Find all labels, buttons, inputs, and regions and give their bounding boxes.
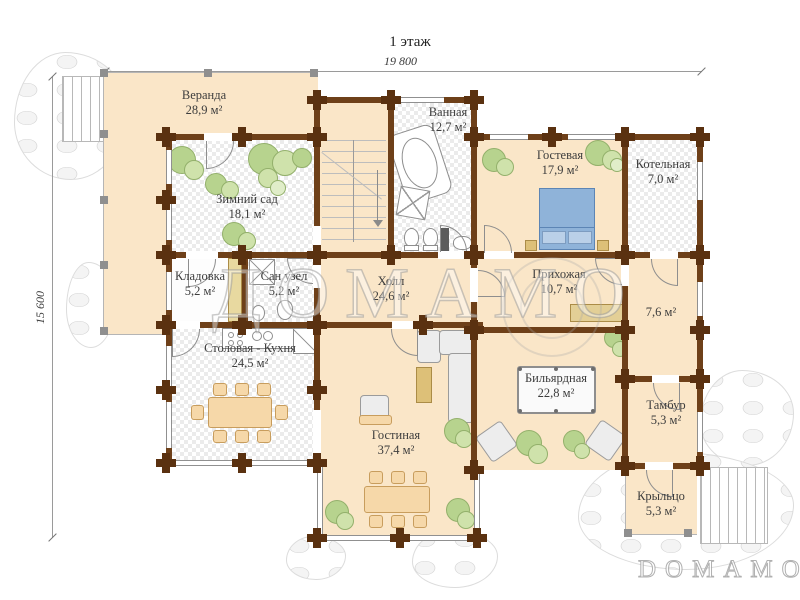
room-name: Ванная	[429, 105, 468, 120]
log-post	[381, 251, 401, 259]
room-area: 5,3 м²	[637, 504, 685, 519]
chair	[213, 430, 227, 443]
door-opening	[652, 375, 679, 383]
log-post	[615, 251, 635, 259]
room-area: 5,3 м²	[646, 413, 685, 428]
log-post	[615, 375, 635, 383]
log-post	[615, 462, 635, 470]
veranda-post	[204, 69, 212, 77]
room-area: 5,2 м²	[261, 284, 308, 299]
stair-rail	[353, 140, 354, 242]
dining-table	[208, 397, 272, 428]
room-area: 24,5 м²	[204, 356, 296, 371]
room-label-porch: Крыльцо 5,3 м²	[637, 489, 685, 519]
plan-title: 1 этаж	[389, 34, 430, 51]
room-area: 37,4 м²	[372, 443, 420, 458]
wall	[388, 97, 394, 258]
room-label-storage: Кладовка 5,2 м²	[175, 269, 225, 299]
window	[490, 134, 528, 140]
window	[166, 272, 172, 310]
billiard-pocket	[591, 367, 595, 371]
chair	[257, 430, 271, 443]
room-label-veranda: Веранда 28,9 м²	[182, 88, 226, 118]
stove-burner	[228, 332, 234, 338]
chair	[235, 430, 249, 443]
billiard-pocket	[518, 409, 522, 413]
log-post	[307, 386, 327, 394]
room-area: 7,6 м²	[646, 305, 676, 320]
toilet-tank	[423, 245, 438, 251]
door-opening	[470, 268, 478, 302]
log-post	[690, 133, 710, 141]
plant	[457, 511, 475, 529]
log-post	[307, 459, 327, 467]
room-name: Зимний сад	[216, 192, 278, 207]
log-post	[690, 251, 710, 259]
chair	[413, 471, 427, 484]
log-post	[615, 326, 635, 334]
chair	[275, 405, 288, 420]
room-label-tambour: Тамбур 5,3 м²	[646, 398, 685, 428]
window	[166, 150, 172, 184]
dining-table-living	[364, 486, 430, 513]
log-post	[156, 133, 176, 141]
bed-pillow	[542, 231, 566, 244]
log-post	[307, 133, 327, 141]
room-name: Сан узел	[261, 269, 308, 284]
veranda-edge	[103, 334, 166, 335]
storage-shelf	[228, 258, 242, 322]
shower	[396, 186, 431, 221]
log-post	[232, 321, 252, 329]
bed-pillow	[568, 231, 592, 244]
log-post	[156, 459, 176, 467]
wc-sink	[252, 305, 265, 321]
chair	[213, 383, 227, 396]
chair	[369, 471, 383, 484]
veranda-post	[100, 130, 108, 138]
plant	[292, 148, 312, 168]
log-post	[232, 133, 252, 141]
room-name: Гостевая	[537, 148, 583, 163]
plant	[496, 158, 514, 176]
log-post	[464, 96, 484, 104]
plant	[574, 443, 590, 459]
porch-post	[684, 529, 692, 537]
kitchen-sink	[252, 331, 262, 341]
log-post	[690, 326, 710, 334]
room-name: Котельная	[636, 157, 691, 172]
room-name: Гостиная	[372, 428, 420, 443]
room-name: Веранда	[182, 88, 226, 103]
room-label-hall: Холл 24,6 м²	[373, 274, 410, 304]
room-label-winter-garden: Зимний сад 18,1 м²	[216, 192, 278, 222]
window	[398, 97, 444, 103]
hall-rug	[359, 415, 392, 425]
entry-steps-left	[62, 76, 105, 142]
wall	[477, 327, 628, 333]
room-veranda-side	[104, 134, 166, 334]
chair	[391, 515, 405, 528]
room-label-guest: Гостевая 17,9 м²	[537, 148, 583, 178]
chair	[391, 471, 405, 484]
stair-arrow-stem	[377, 170, 378, 220]
bed-blanket-line	[539, 227, 595, 228]
log-post	[464, 251, 484, 259]
room-area: 28,9 м²	[182, 103, 226, 118]
veranda-post	[100, 261, 108, 269]
room-area: 12,7 м²	[429, 120, 468, 135]
window	[697, 282, 703, 316]
opening	[313, 410, 321, 458]
entry-bench	[570, 304, 628, 322]
room-area: 17,9 м²	[537, 163, 583, 178]
log-post	[232, 251, 252, 259]
chair	[235, 383, 249, 396]
room-label-living: Гостиная 37,4 м²	[372, 428, 420, 458]
log-post	[615, 133, 635, 141]
plant	[336, 512, 354, 530]
room-area: 24,6 м²	[373, 289, 410, 304]
chair	[369, 515, 383, 528]
door-opening	[645, 462, 673, 470]
log-post	[156, 196, 176, 204]
chair	[413, 515, 427, 528]
toilet-tank	[404, 245, 419, 251]
room-area: 7,0 м²	[636, 172, 691, 187]
veranda-post	[100, 69, 108, 77]
room-area: 10,7 м²	[532, 282, 586, 297]
log-post	[307, 96, 327, 104]
window	[697, 412, 703, 452]
coffee-table	[416, 367, 432, 403]
log-post	[413, 321, 433, 329]
door-opening	[186, 251, 218, 259]
log-post	[542, 133, 562, 141]
room-area: 18,1 м²	[216, 207, 278, 222]
kitchen-sink	[263, 331, 273, 341]
porch-edge	[625, 469, 626, 535]
log-post	[390, 534, 410, 542]
room-label-corridor: 7,6 м²	[646, 305, 676, 320]
billiard-pocket	[554, 409, 558, 413]
nightstand	[525, 240, 537, 251]
room-area: 5,2 м²	[175, 284, 225, 299]
log-post	[467, 534, 487, 542]
nightstand	[597, 240, 609, 251]
glazed-wall	[474, 470, 480, 537]
log-post	[156, 251, 176, 259]
chair	[257, 383, 271, 396]
dimension-width-label: 19 800	[384, 54, 417, 69]
billiard-pocket	[591, 409, 595, 413]
window	[697, 162, 703, 200]
room-name: Холл	[373, 274, 410, 289]
floor-plan: 1 этаж 19 800 15 600	[0, 0, 800, 600]
room-name: Столовая - Кухня	[204, 341, 296, 356]
room-name: Прихожая	[532, 267, 586, 282]
log-post	[690, 462, 710, 470]
wall	[622, 134, 628, 466]
door-opening	[650, 251, 678, 259]
veranda-post	[100, 327, 108, 335]
room-label-bathroom: Ванная 12,7 м²	[429, 105, 468, 135]
log-post	[156, 386, 176, 394]
log-post	[464, 466, 484, 474]
glazed-wall	[317, 466, 323, 537]
room-name: Бильярдная	[525, 371, 587, 386]
wc-toilet	[277, 300, 293, 320]
plant	[528, 444, 548, 464]
plant	[184, 160, 204, 180]
porch-steps	[700, 467, 768, 544]
room-name: Кладовка	[175, 269, 225, 284]
wall	[471, 97, 477, 258]
porch-post	[624, 529, 632, 537]
log-post	[381, 96, 401, 104]
window	[166, 402, 172, 448]
room-label-wc: Сан узел 5,2 м²	[261, 269, 308, 299]
room-name: Крыльцо	[637, 489, 685, 504]
room-name: Тамбур	[646, 398, 685, 413]
room-area: 22,8 м²	[525, 386, 587, 401]
log-post	[307, 251, 327, 259]
room-label-dining-kitchen: Столовая - Кухня 24,5 м²	[204, 341, 296, 371]
log-post	[156, 321, 176, 329]
room-label-boiler: Котельная 7,0 м²	[636, 157, 691, 187]
log-post	[307, 321, 327, 329]
log-post	[232, 459, 252, 467]
log-post	[690, 375, 710, 383]
window	[568, 134, 618, 140]
stair-arrow-head	[373, 220, 383, 227]
stone-patch-right	[700, 370, 794, 466]
room-label-billiard: Бильярдная 22,8 м²	[525, 371, 587, 401]
veranda-post	[310, 69, 318, 77]
bathtub-basin	[395, 133, 443, 193]
veranda-post	[100, 196, 108, 204]
log-post	[464, 326, 484, 334]
chair	[191, 405, 204, 420]
wall	[317, 322, 395, 328]
billiard-pocket	[518, 367, 522, 371]
log-post	[307, 534, 327, 542]
room-label-entry-hall: Прихожая 10,7 м²	[532, 267, 586, 297]
dimension-height-label: 15 600	[33, 291, 48, 324]
dimension-line-left	[52, 76, 53, 538]
